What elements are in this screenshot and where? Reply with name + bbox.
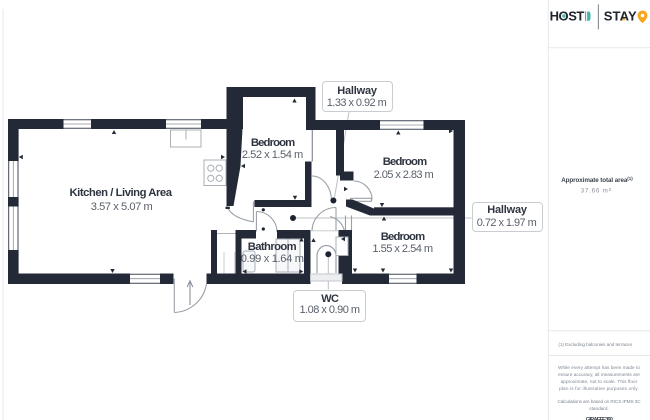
svg-text:STAY: STAY	[604, 9, 637, 24]
svg-text:HOST: HOST	[550, 9, 585, 24]
